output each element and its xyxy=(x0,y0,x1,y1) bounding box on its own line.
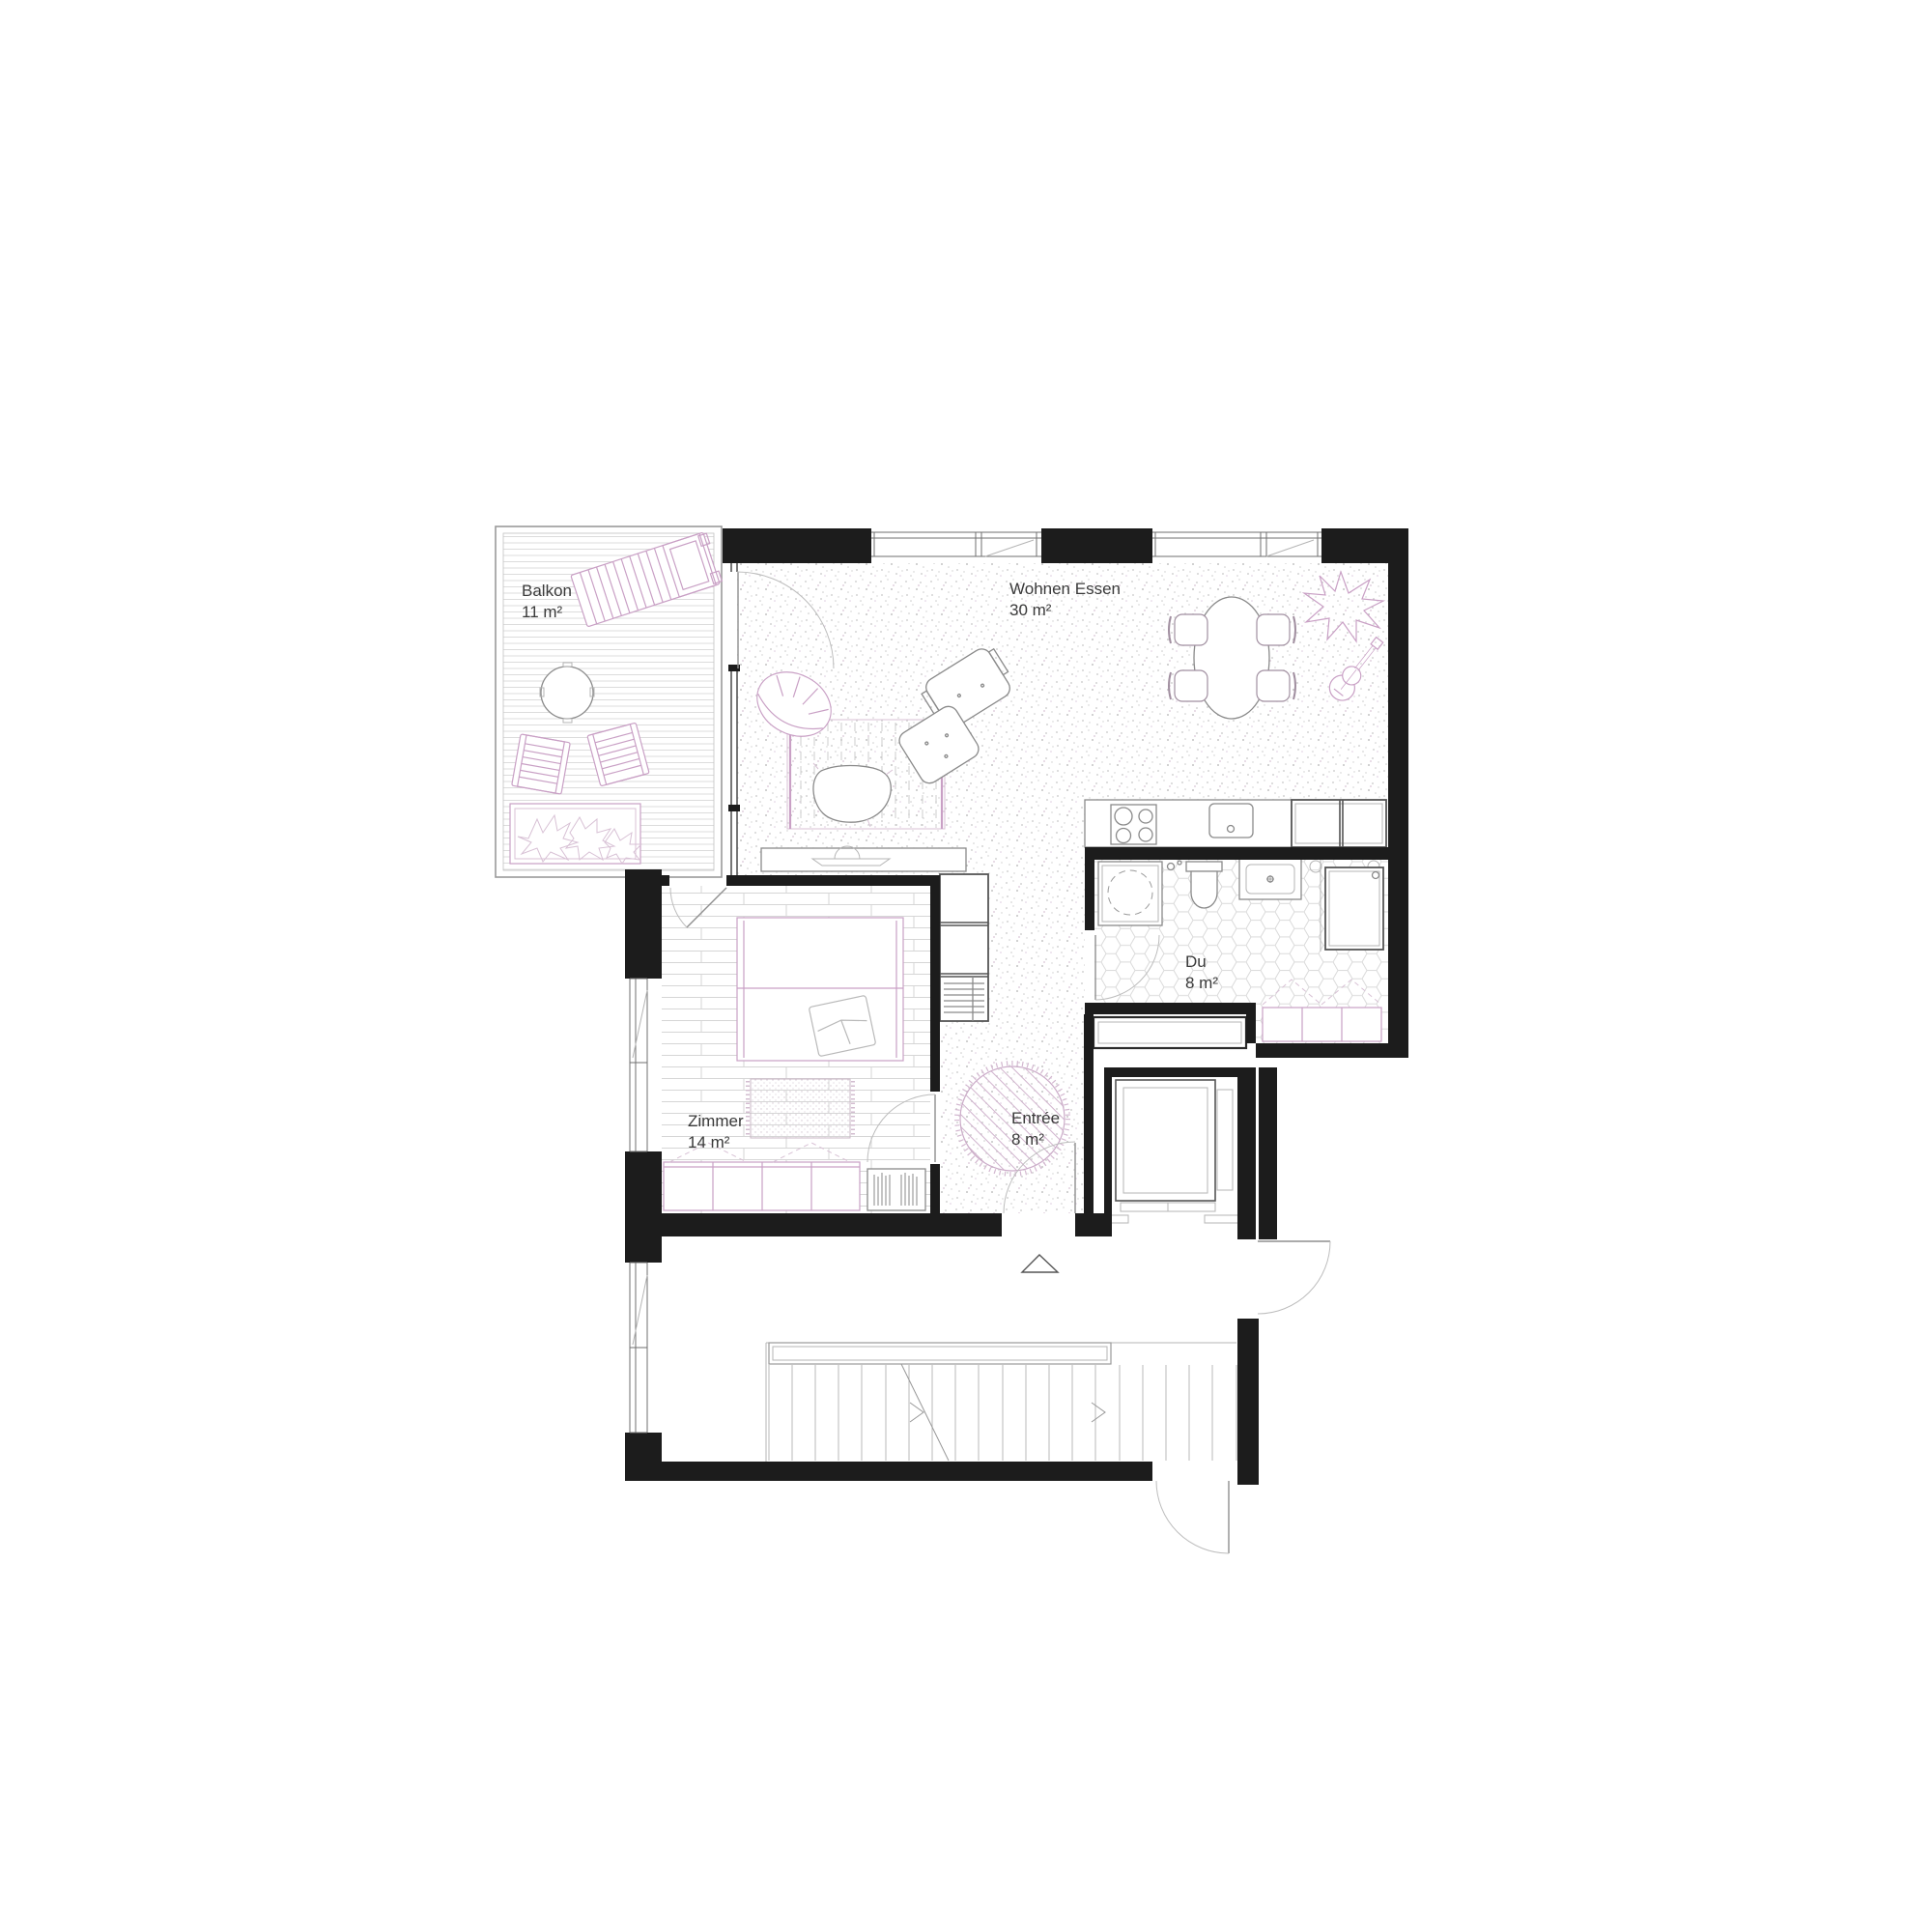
double-bed xyxy=(737,918,903,1061)
living-window-2 xyxy=(1152,532,1321,556)
entry-triangle-marker xyxy=(1022,1255,1058,1272)
bedroom-window xyxy=(630,979,647,1151)
floor-plan-canvas: Balkon 11 m² Wohnen Essen 30 m² Zimmer 1… xyxy=(0,0,1932,1932)
cooktop xyxy=(1111,805,1156,844)
label-du-name: Du xyxy=(1185,952,1207,971)
living-balcony-wall xyxy=(731,563,737,875)
label-wohnen-name: Wohnen Essen xyxy=(1009,580,1121,598)
kitchen xyxy=(1085,800,1386,847)
hall-shelf-unit xyxy=(940,874,988,1021)
corridor-door xyxy=(1258,1241,1330,1314)
living-window-1 xyxy=(871,532,1041,556)
floor-plan-drawing: Balkon 11 m² Wohnen Essen 30 m² Zimmer 1… xyxy=(0,0,1932,1932)
planter-box xyxy=(510,804,641,864)
balcony-chair-1 xyxy=(512,734,571,794)
tall-kitchen-units xyxy=(1292,800,1386,847)
label-entree-name: Entrée xyxy=(1011,1109,1060,1127)
elevator xyxy=(1107,1080,1240,1223)
stairwell-window xyxy=(630,1263,647,1433)
duct-niche xyxy=(1094,1017,1246,1048)
label-du-area: 8 m² xyxy=(1185,974,1218,992)
label-wohnen-area: 30 m² xyxy=(1009,601,1052,619)
dining-table xyxy=(1194,597,1269,719)
label-balkon-name: Balkon xyxy=(522,582,572,600)
label-zimmer-area: 14 m² xyxy=(688,1133,730,1151)
kitchen-sink xyxy=(1209,804,1253,838)
label-zimmer-name: Zimmer xyxy=(688,1112,744,1130)
balcony xyxy=(496,526,723,877)
shower xyxy=(1098,862,1162,925)
staircase xyxy=(766,1343,1236,1462)
stair-chevron-2 xyxy=(1092,1403,1105,1422)
bedroom-rug xyxy=(748,1079,853,1138)
sideboard xyxy=(761,846,966,871)
tall-cabinet xyxy=(1321,860,1383,952)
stair-direction-line xyxy=(901,1364,949,1461)
bookshelf xyxy=(867,1169,925,1210)
washbasin xyxy=(1239,859,1301,899)
stair-treads xyxy=(769,1365,1236,1461)
building-entry-door xyxy=(1156,1481,1229,1553)
label-balkon-area: 11 m² xyxy=(522,603,563,621)
label-entree-area: 8 m² xyxy=(1011,1130,1044,1149)
